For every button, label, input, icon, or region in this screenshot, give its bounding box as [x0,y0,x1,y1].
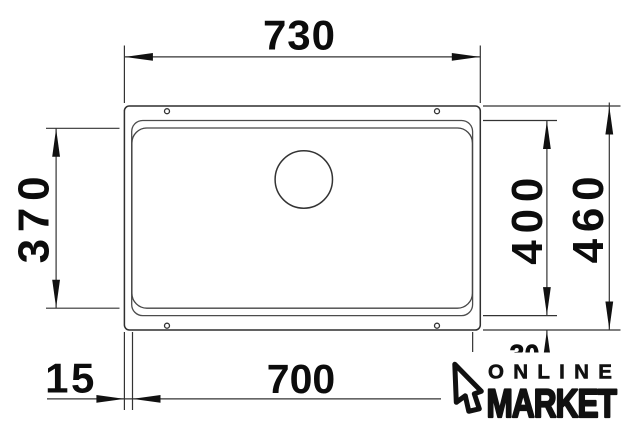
svg-text:370: 370 [10,170,59,264]
svg-text:700: 700 [267,356,335,402]
svg-text:730: 730 [263,12,336,59]
svg-text:400: 400 [503,171,552,265]
svg-text:MARKET: MARKET [487,380,617,425]
svg-text:460: 460 [564,170,613,264]
svg-text:15: 15 [45,354,97,401]
